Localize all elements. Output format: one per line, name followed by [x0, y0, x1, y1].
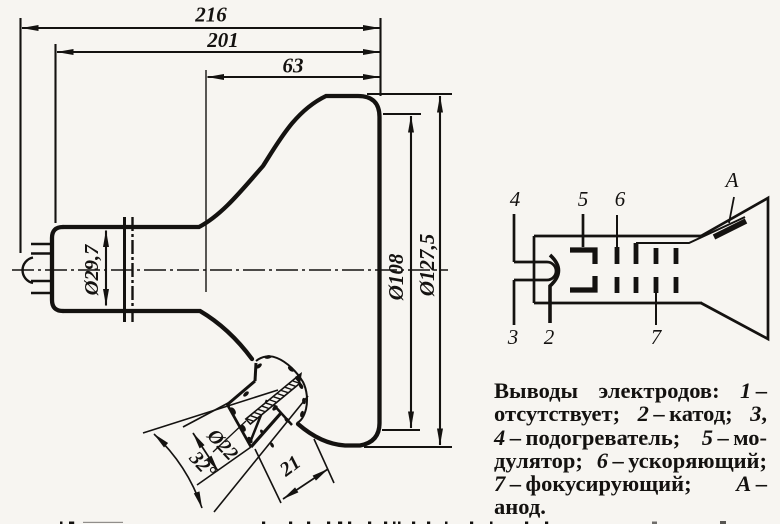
- svg-text:3: 3: [507, 325, 519, 349]
- svg-text:Ø127,5: Ø127,5: [415, 234, 439, 297]
- svg-text:7: 7: [651, 325, 663, 349]
- svg-text:A: A: [724, 168, 739, 192]
- svg-text:5: 5: [578, 187, 589, 211]
- svg-text:216: 216: [194, 3, 227, 27]
- svg-text:6: 6: [615, 187, 626, 211]
- svg-text:Ø29,7: Ø29,7: [81, 244, 103, 296]
- svg-text:2: 2: [544, 325, 555, 349]
- svg-text:201: 201: [206, 28, 239, 52]
- svg-text:63: 63: [283, 54, 304, 78]
- svg-text:21: 21: [275, 451, 305, 481]
- svg-text:4: 4: [510, 187, 521, 211]
- svg-text:Ø108: Ø108: [384, 253, 408, 301]
